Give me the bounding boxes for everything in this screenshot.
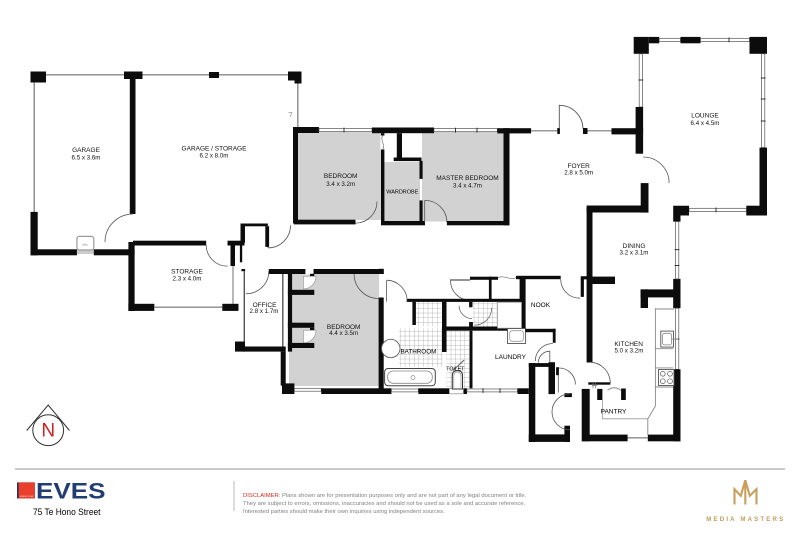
svg-text:2.3 x 4.0m: 2.3 x 4.0m: [173, 276, 202, 283]
svg-text:LOUNGE: LOUNGE: [691, 113, 719, 120]
svg-text:LAUNDRY: LAUNDRY: [495, 354, 527, 361]
svg-text:6.2 x 8.0m: 6.2 x 8.0m: [200, 153, 229, 160]
svg-text:TOILET: TOILET: [446, 367, 465, 373]
svg-text:BATHROOM: BATHROOM: [400, 349, 436, 356]
svg-text:4.4 x 3.5m: 4.4 x 3.5m: [329, 330, 358, 337]
svg-text:EVES.CO.NZ: EVES.CO.NZ: [20, 496, 34, 498]
svg-text:STORAGE: STORAGE: [171, 269, 203, 276]
svg-text:3.4 x 3.2m: 3.4 x 3.2m: [326, 181, 355, 188]
svg-text:GARAGE / STORAGE: GARAGE / STORAGE: [182, 146, 248, 153]
svg-text:GARAGE: GARAGE: [72, 147, 100, 154]
svg-text:5.0 x 3.2m: 5.0 x 3.2m: [614, 348, 643, 355]
svg-text:3.2 x 3.1m: 3.2 x 3.1m: [620, 250, 649, 257]
svg-text:3.4 x 4.7m: 3.4 x 4.7m: [453, 183, 482, 190]
svg-text:2.8 x 5.0m: 2.8 x 5.0m: [564, 170, 593, 177]
svg-text:BEDROOM: BEDROOM: [324, 173, 358, 180]
svg-text:DISCLAIMER: Plans shown are fo: DISCLAIMER: Plans shown are for presenta…: [243, 493, 527, 499]
svg-text:N: N: [41, 421, 55, 442]
svg-text:75 Te Hono Street: 75 Te Hono Street: [33, 507, 101, 518]
svg-text:WARDROBE: WARDROBE: [386, 189, 419, 195]
svg-text:MEDIA MASTERS: MEDIA MASTERS: [706, 516, 785, 523]
svg-text:They are subject to errors, om: They are subject to errors, omissions, i…: [243, 501, 526, 507]
svg-text:2.8 x 1.7m: 2.8 x 1.7m: [250, 308, 279, 315]
svg-text:NOOK: NOOK: [531, 302, 551, 309]
svg-text:Interested parties should make: Interested parties should make their own…: [243, 509, 445, 515]
svg-text:EVES: EVES: [36, 479, 106, 504]
svg-text:PANTRY: PANTRY: [601, 409, 627, 416]
svg-text:6.5 x 3.6m: 6.5 x 3.6m: [72, 155, 101, 162]
svg-text:MASTER BEDROOM: MASTER BEDROOM: [436, 175, 498, 182]
svg-text:6.4 x 4.5m: 6.4 x 4.5m: [691, 120, 720, 127]
